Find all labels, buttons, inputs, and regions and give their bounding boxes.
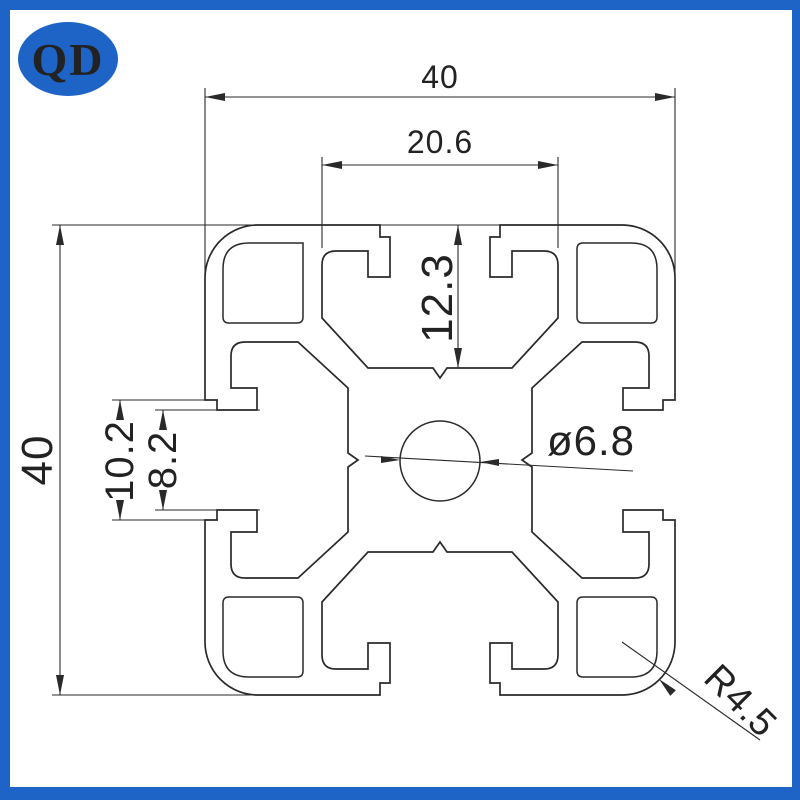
- dim-overall-height-label: 40: [13, 435, 62, 486]
- dim-slot-depth-label: 12.3: [413, 253, 462, 343]
- dim-slot-opening-outer-label: 10.2: [98, 420, 142, 502]
- dim-slot-opening-inner-label: 8.2: [141, 431, 185, 490]
- logo: QD: [18, 22, 118, 96]
- dim-slot-cavity-width-label: 20.6: [407, 124, 473, 160]
- drawing-page: QD 40 20.6 12.3: [0, 0, 800, 800]
- dim-overall-width-label: 40: [421, 59, 459, 95]
- logo-text: QD: [32, 34, 105, 85]
- dim-center-hole-label: ø6.8: [547, 417, 635, 464]
- technical-drawing-canvas: QD 40 20.6 12.3: [0, 0, 800, 800]
